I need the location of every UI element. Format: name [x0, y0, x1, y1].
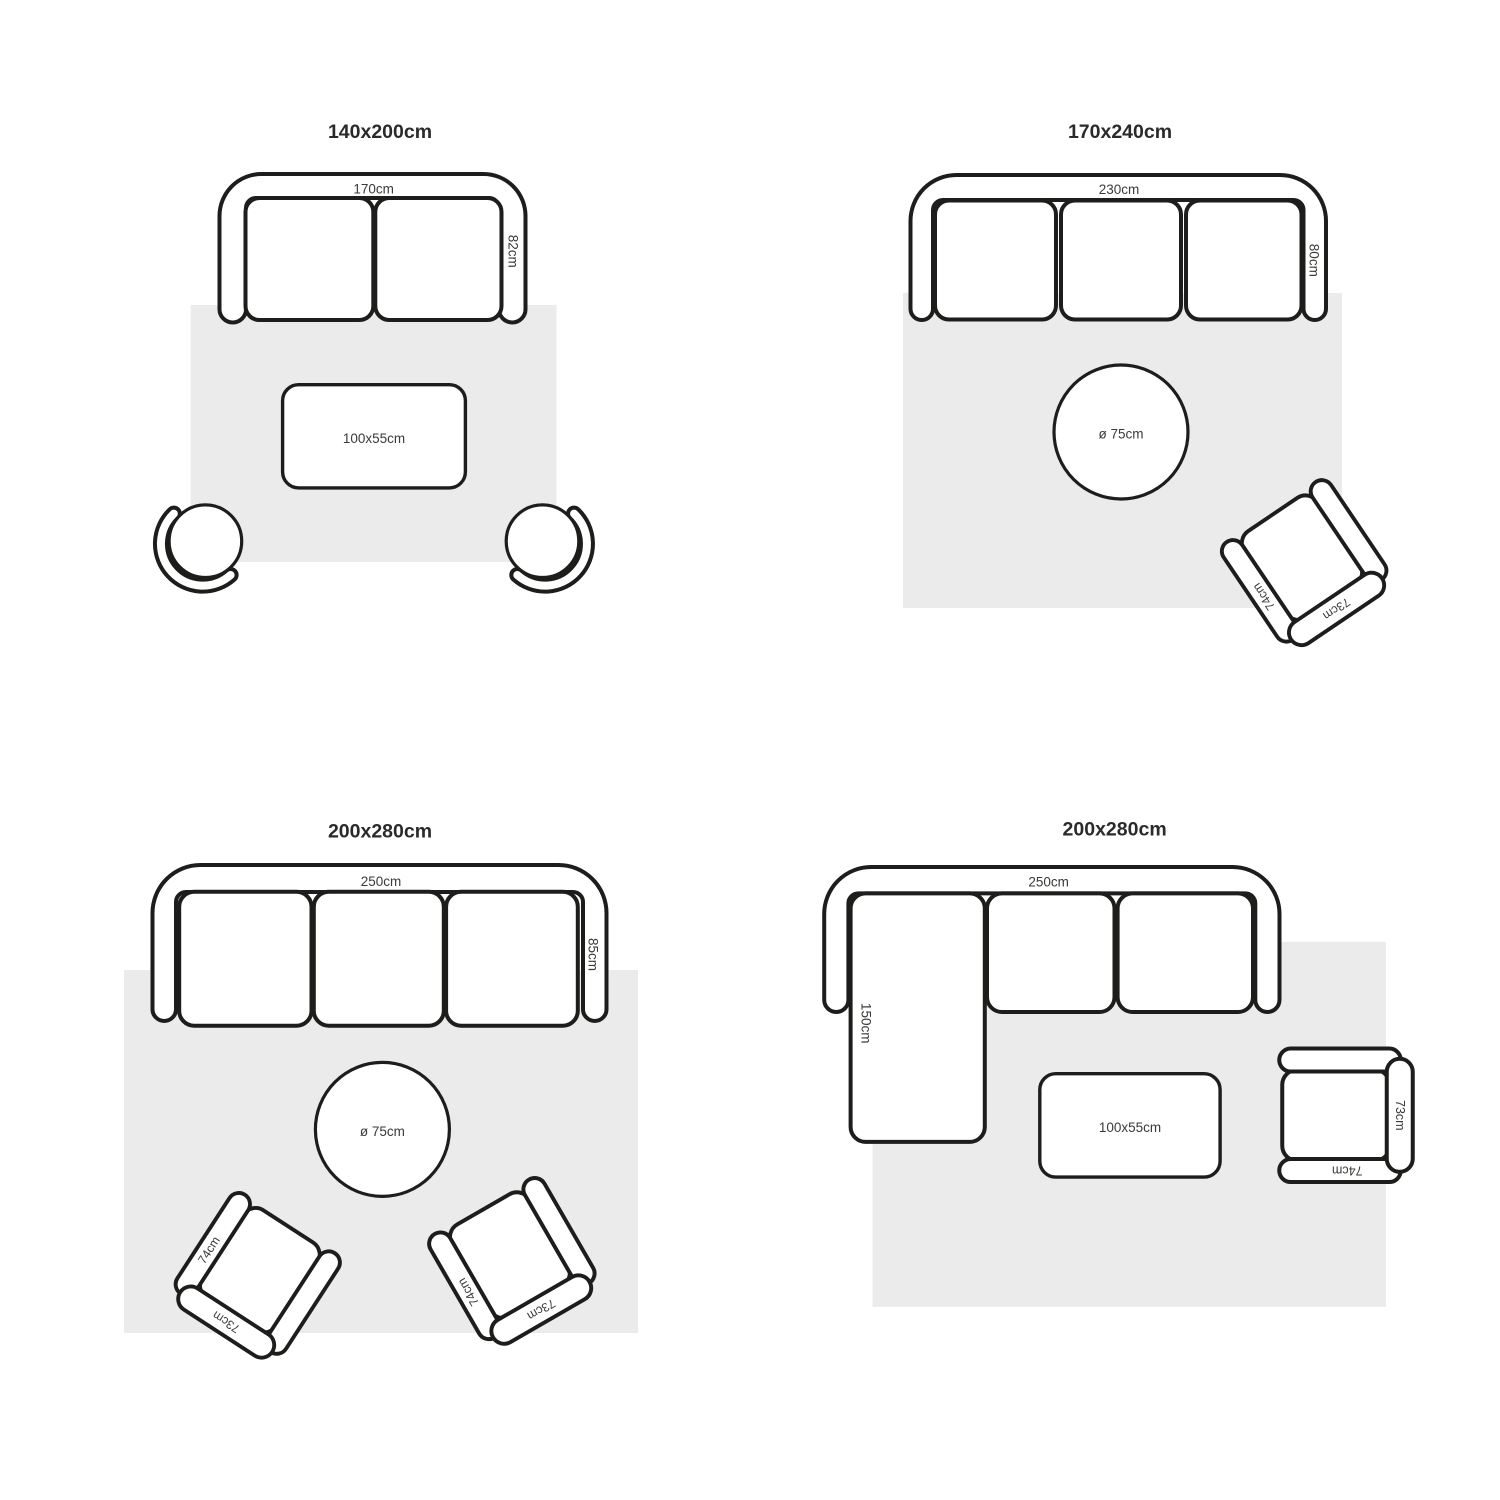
svg-text:73cm: 73cm — [1393, 1100, 1407, 1131]
svg-text:200x280cm: 200x280cm — [328, 820, 432, 842]
svg-text:140x200cm: 140x200cm — [328, 121, 432, 143]
svg-text:230cm: 230cm — [1099, 182, 1140, 197]
svg-text:100x55cm: 100x55cm — [1099, 1120, 1161, 1135]
svg-text:ø 75cm: ø 75cm — [360, 1124, 405, 1139]
svg-text:250cm: 250cm — [361, 874, 402, 889]
svg-text:250cm: 250cm — [1028, 874, 1069, 889]
svg-text:80cm: 80cm — [1307, 244, 1322, 277]
svg-text:170cm: 170cm — [353, 182, 394, 197]
svg-text:ø 75cm: ø 75cm — [1098, 427, 1143, 442]
svg-text:82cm: 82cm — [505, 235, 520, 268]
svg-text:100x55cm: 100x55cm — [343, 431, 405, 446]
svg-text:170x240cm: 170x240cm — [1068, 121, 1172, 143]
svg-text:200x280cm: 200x280cm — [1063, 819, 1167, 841]
svg-text:150cm: 150cm — [859, 1003, 874, 1044]
svg-text:85cm: 85cm — [586, 938, 601, 971]
svg-text:74cm: 74cm — [1332, 1164, 1363, 1178]
